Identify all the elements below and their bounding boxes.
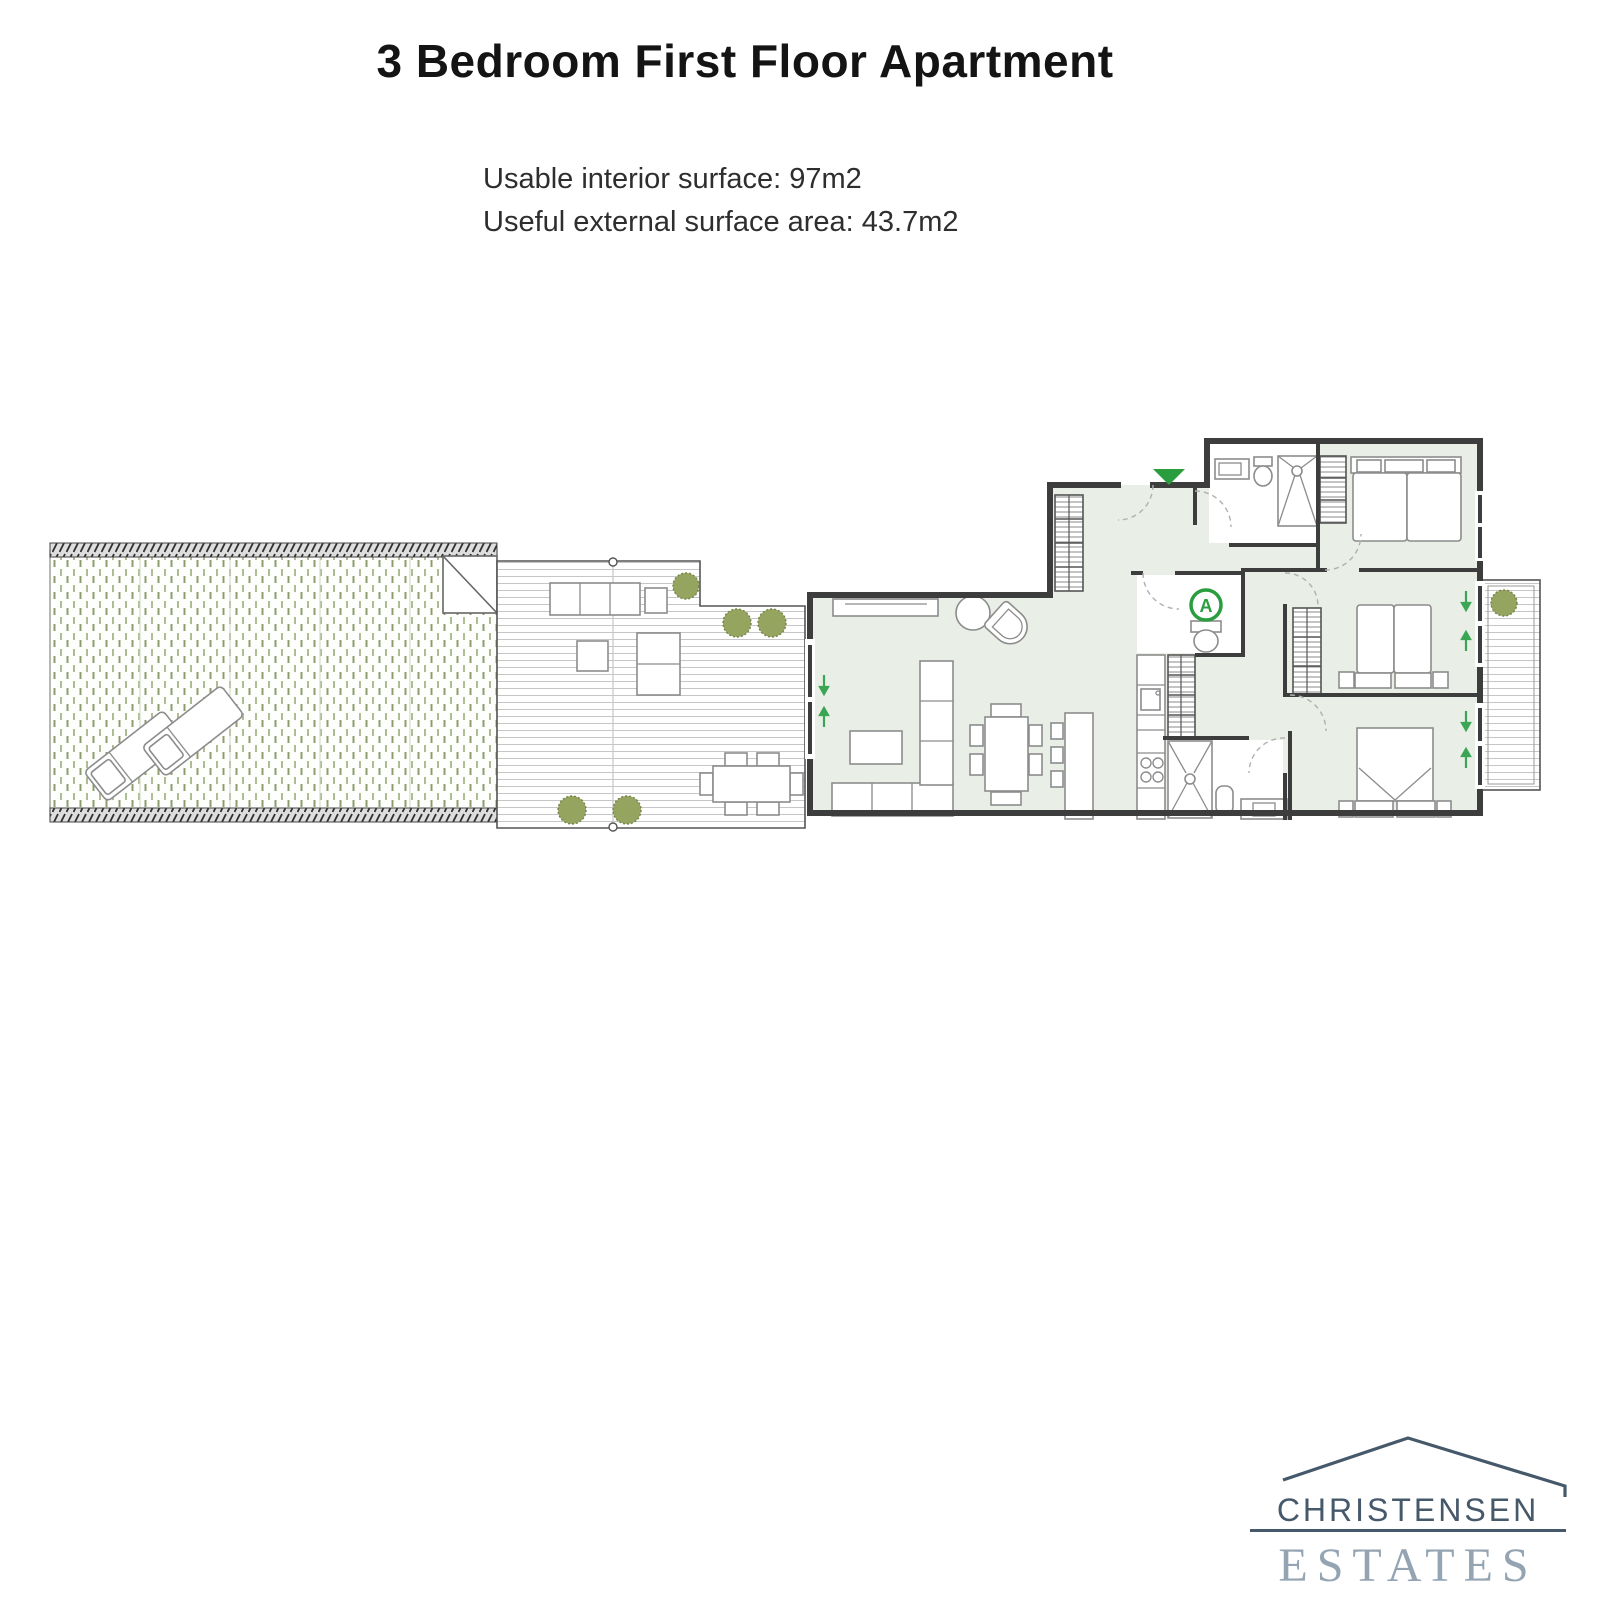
- entry-wardrobe: [1055, 495, 1083, 591]
- window: [1475, 491, 1485, 561]
- bar-stool: [1051, 747, 1063, 763]
- garden-corner-access: [443, 556, 497, 613]
- bed-3: [1357, 728, 1433, 801]
- fence-top: [50, 543, 497, 557]
- bush: [1491, 590, 1517, 616]
- bush: [613, 796, 641, 824]
- fence-bottom: [50, 808, 497, 822]
- logo-roof-icon: [1248, 1426, 1568, 1498]
- bed-master: [1353, 473, 1407, 541]
- garden-area: [50, 543, 497, 822]
- bush: [673, 573, 699, 599]
- outdoor-dining-table: [713, 766, 790, 802]
- nightstand: [1339, 672, 1354, 688]
- bathroom-sink: [1215, 459, 1249, 479]
- coffee-table: [850, 731, 902, 764]
- surface-notes: Usable interior surface: 97m2 Useful ext…: [483, 158, 959, 244]
- outdoor-sofa: [550, 583, 667, 615]
- shower: [1168, 741, 1212, 818]
- bar-stool: [1051, 723, 1063, 739]
- balcony: [1482, 580, 1540, 790]
- logo-rule: [1250, 1529, 1566, 1532]
- bar-stool: [1051, 771, 1063, 787]
- kitchen-counter: [1137, 655, 1165, 819]
- deck-post: [609, 558, 617, 566]
- floorplan: A: [45, 423, 1545, 838]
- bush: [758, 609, 786, 637]
- logo-division: ESTATES: [1232, 1538, 1584, 1593]
- page-title: 3 Bedroom First Floor Apartment: [0, 34, 1490, 88]
- wc-floor: [1137, 575, 1241, 653]
- bush: [723, 609, 751, 637]
- toilet: [1254, 457, 1272, 466]
- surface-note-line-1: Usable interior surface: 97m2: [483, 158, 959, 201]
- marker-a-label: A: [1200, 596, 1213, 616]
- outdoor-side-table: [645, 588, 667, 613]
- outdoor-lounge-chairs: [637, 633, 680, 695]
- bedroom-2: [1293, 605, 1448, 695]
- window: [1475, 581, 1485, 667]
- window: [805, 639, 815, 759]
- logo-name: CHRISTENSEN: [1240, 1492, 1576, 1529]
- bedroom-2-wardrobe: [1293, 608, 1321, 695]
- water-heater: [1216, 786, 1233, 814]
- deck-area: [497, 558, 805, 831]
- surface-note-line-2: Useful external surface area: 43.7m2: [483, 201, 959, 244]
- shower: [1278, 456, 1317, 526]
- pantry-cabinet: [1168, 655, 1195, 737]
- kitchen-sink: [1141, 689, 1160, 710]
- bed-2: [1357, 605, 1394, 673]
- nightstand: [1433, 672, 1448, 688]
- bush: [558, 796, 586, 824]
- tv-sideboard: [833, 599, 938, 616]
- outdoor-ottoman: [577, 641, 608, 671]
- master-bedroom: [1351, 457, 1461, 541]
- bathroom-wardrobe: [1320, 456, 1346, 523]
- marker-a: A: [1191, 590, 1221, 620]
- dining-table: [985, 717, 1028, 791]
- deck-post: [609, 823, 617, 831]
- window: [1475, 703, 1485, 789]
- wc-room: [1191, 621, 1221, 652]
